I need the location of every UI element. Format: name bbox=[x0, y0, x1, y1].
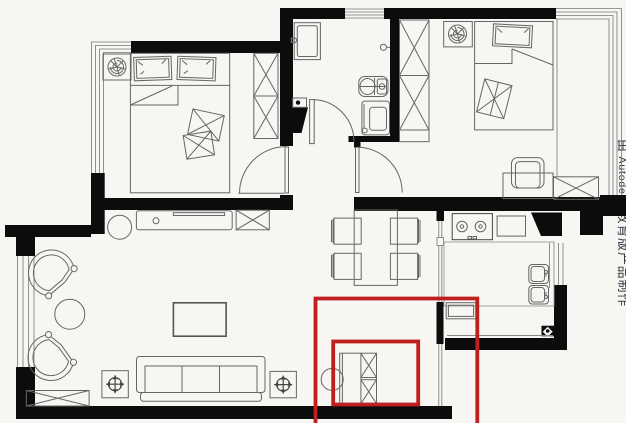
svg-text:由 Autodesk 教育版产品制作: 由 Autodesk 教育版产品制作 bbox=[616, 139, 626, 307]
